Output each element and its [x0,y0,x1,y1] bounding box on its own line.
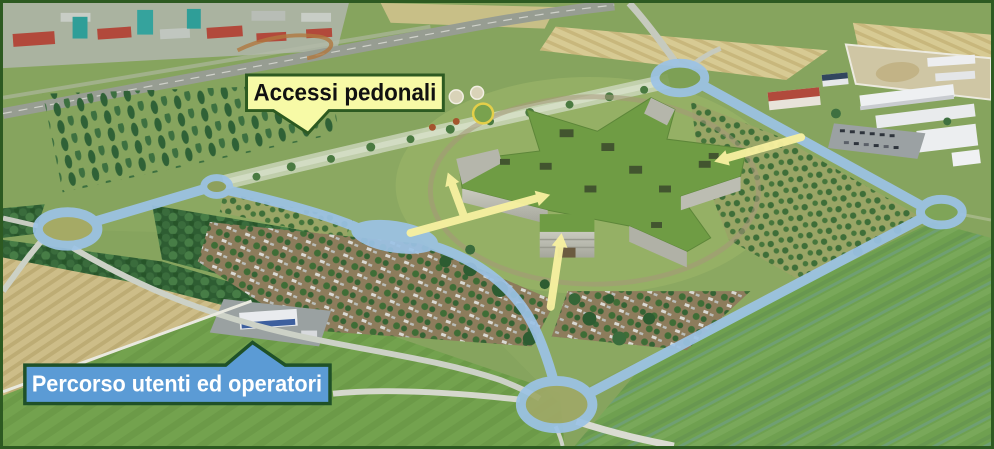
roundabout-north [655,63,705,93]
callout-label: Percorso utenti ed operatori [32,371,322,397]
callout-label: Accessi pedonali [253,80,436,107]
roundabout-east [920,199,962,225]
roundabout-south [521,381,593,428]
aerial-masterplan-figure: Accessi pedonali Percorso utenti ed oper… [0,0,994,449]
entrance-tower [540,214,595,257]
aerial-scene: Accessi pedonali Percorso utenti ed oper… [3,3,991,446]
roundabout-west [38,212,98,246]
roundabout-inner-west [204,178,230,196]
